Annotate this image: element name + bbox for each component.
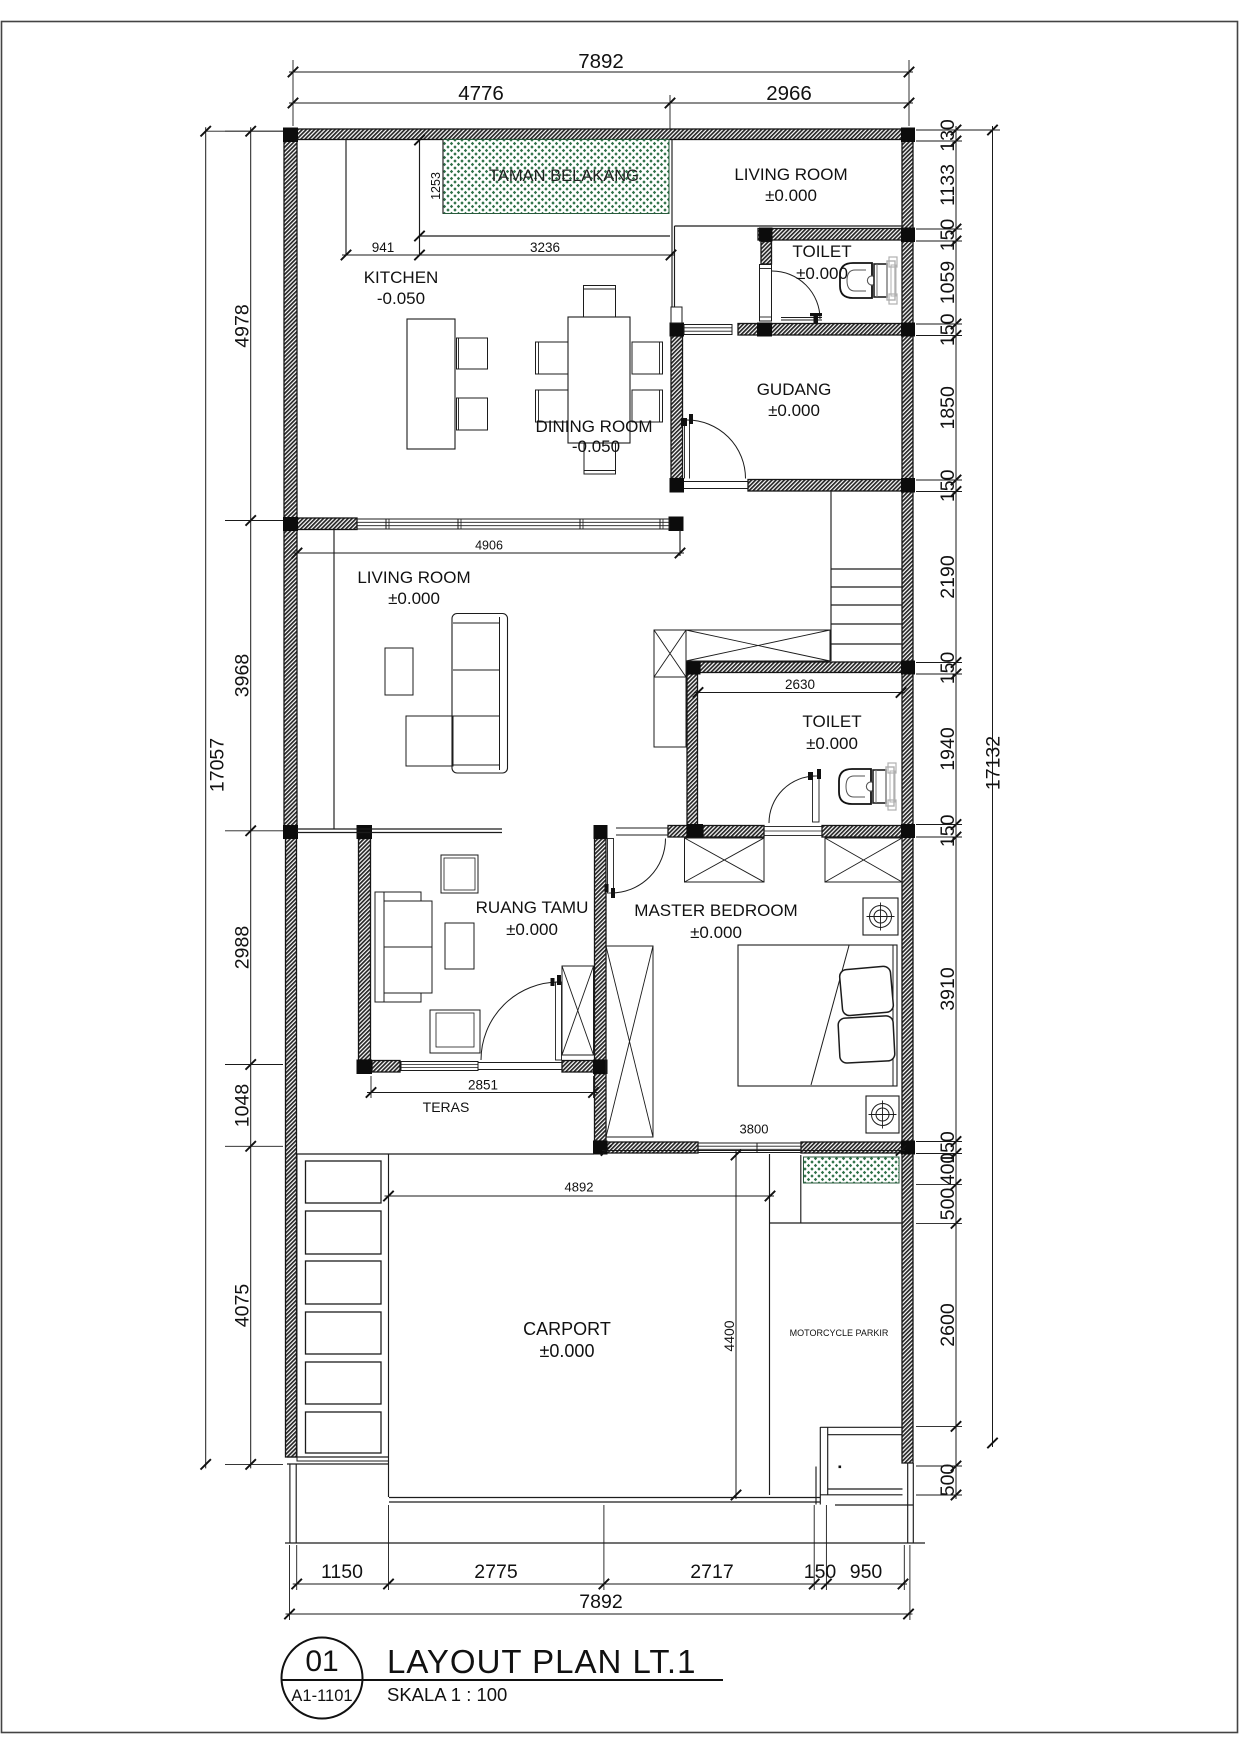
svg-text:CARPORT: CARPORT (523, 1319, 611, 1339)
svg-text:150: 150 (804, 1561, 837, 1583)
svg-text:±0.000: ±0.000 (765, 186, 817, 205)
svg-text:MOTORCYCLE PARKIR: MOTORCYCLE PARKIR (790, 1328, 889, 1338)
svg-text:4906: 4906 (475, 539, 503, 553)
svg-text:RUANG TAMU: RUANG TAMU (476, 898, 589, 917)
svg-text:TOILET: TOILET (792, 242, 851, 261)
svg-text:KITCHEN: KITCHEN (364, 268, 439, 287)
svg-text:400: 400 (937, 1153, 959, 1186)
svg-text:±0.000: ±0.000 (388, 589, 440, 608)
svg-text:3800: 3800 (740, 1122, 769, 1137)
svg-text:500: 500 (937, 1464, 959, 1497)
svg-text:17057: 17057 (207, 738, 229, 792)
svg-text:3236: 3236 (530, 240, 560, 255)
svg-text:4892: 4892 (565, 1180, 594, 1195)
svg-text:17132: 17132 (983, 736, 1005, 790)
svg-text:±0.000: ±0.000 (768, 401, 820, 420)
svg-text:150: 150 (937, 219, 959, 252)
svg-text:3968: 3968 (232, 654, 254, 697)
svg-text:150: 150 (937, 469, 959, 502)
svg-text:150: 150 (937, 313, 959, 346)
svg-text:GUDANG: GUDANG (757, 380, 832, 399)
svg-text:±0.000: ±0.000 (796, 264, 848, 283)
svg-text:2717: 2717 (690, 1561, 733, 1583)
svg-text:±0.000: ±0.000 (806, 734, 858, 753)
svg-text:500: 500 (937, 1188, 959, 1221)
svg-text:TOILET: TOILET (802, 712, 861, 731)
svg-text:SKALA 1 : 100: SKALA 1 : 100 (387, 1684, 507, 1705)
svg-text:2630: 2630 (785, 677, 815, 692)
svg-text:01: 01 (305, 1645, 338, 1678)
svg-text:A1-1101: A1-1101 (291, 1687, 352, 1705)
svg-text:941: 941 (372, 240, 395, 255)
svg-text:2775: 2775 (474, 1561, 518, 1583)
svg-text:4978: 4978 (232, 304, 254, 347)
svg-text:1048: 1048 (232, 1084, 254, 1127)
svg-text:-0.050: -0.050 (377, 289, 425, 308)
svg-text:2190: 2190 (937, 555, 959, 599)
svg-text:-0.050: -0.050 (572, 437, 620, 456)
svg-text:2966: 2966 (766, 82, 812, 105)
svg-text:1253: 1253 (429, 172, 443, 200)
svg-text:7892: 7892 (578, 50, 624, 73)
svg-text:150: 150 (937, 814, 959, 847)
svg-text:LIVING ROOM: LIVING ROOM (357, 568, 470, 587)
svg-text:7892: 7892 (579, 1591, 622, 1613)
svg-text:4400: 4400 (721, 1320, 737, 1351)
svg-text:TAMAN BELAKANG: TAMAN BELAKANG (489, 167, 639, 185)
svg-text:±0.000: ±0.000 (540, 1341, 595, 1361)
svg-text:4075: 4075 (232, 1284, 254, 1328)
svg-text:950: 950 (850, 1561, 883, 1583)
svg-text:±0.000: ±0.000 (690, 923, 742, 942)
svg-text:LAYOUT PLAN LT.1: LAYOUT PLAN LT.1 (387, 1643, 696, 1680)
svg-text:130: 130 (937, 119, 959, 152)
svg-text:150: 150 (937, 652, 959, 685)
svg-text:2988: 2988 (232, 926, 254, 969)
svg-text:TERAS: TERAS (423, 1099, 470, 1115)
svg-text:MASTER BEDROOM: MASTER BEDROOM (634, 901, 797, 920)
svg-text:1940: 1940 (937, 727, 959, 771)
svg-text:1850: 1850 (937, 386, 959, 430)
svg-text:4776: 4776 (458, 82, 504, 105)
svg-text:DINING ROOM: DINING ROOM (535, 417, 652, 436)
svg-text:LIVING ROOM: LIVING ROOM (734, 165, 847, 184)
svg-text:±0.000: ±0.000 (506, 920, 558, 939)
svg-text:3910: 3910 (937, 967, 959, 1011)
svg-text:1150: 1150 (321, 1561, 363, 1583)
svg-text:1133: 1133 (937, 164, 959, 206)
svg-text:2600: 2600 (937, 1303, 959, 1347)
svg-text:1059: 1059 (937, 261, 959, 304)
svg-text:2851: 2851 (468, 1078, 498, 1093)
